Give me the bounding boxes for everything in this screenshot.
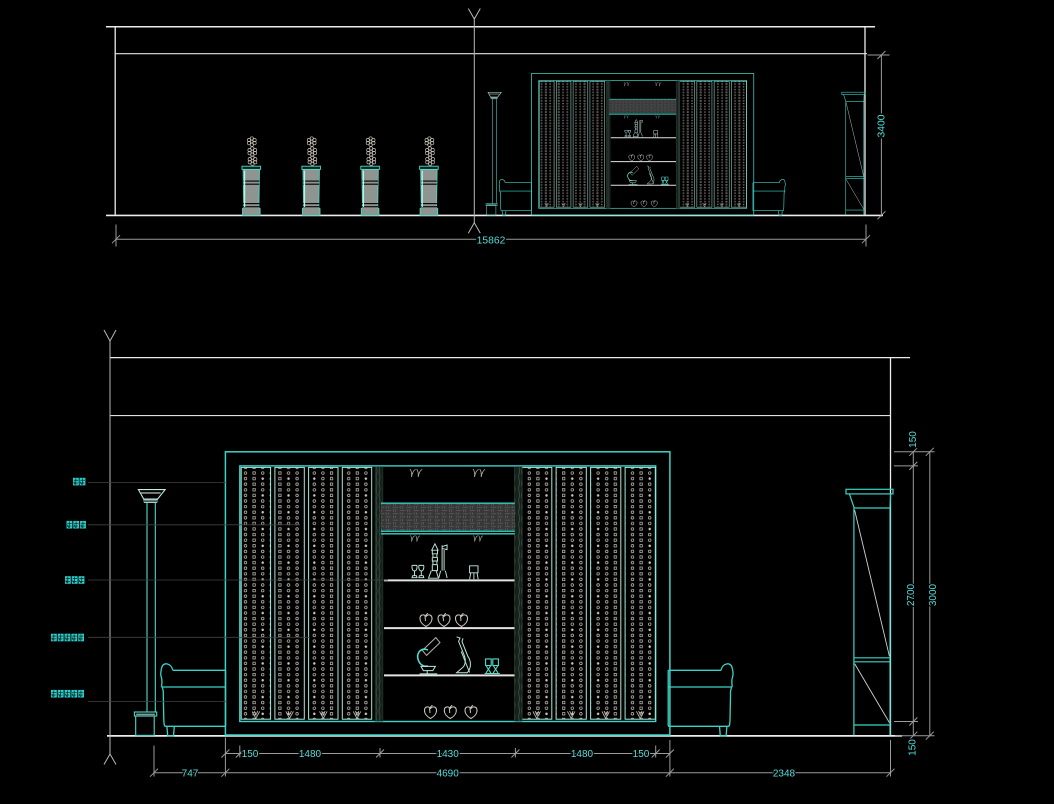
svg-text:15862: 15862 — [477, 235, 506, 246]
svg-text:150: 150 — [908, 739, 919, 756]
svg-text:150: 150 — [908, 431, 919, 448]
svg-text:747: 747 — [182, 768, 199, 779]
svg-text:4690: 4690 — [437, 768, 460, 779]
svg-text:2700: 2700 — [906, 583, 917, 606]
svg-text:2348: 2348 — [773, 768, 796, 779]
svg-text:1430: 1430 — [437, 749, 460, 760]
svg-text:3400: 3400 — [877, 114, 888, 137]
svg-text:1480: 1480 — [571, 749, 594, 760]
svg-text:150: 150 — [633, 749, 650, 760]
svg-text:3000: 3000 — [928, 583, 939, 606]
svg-text:1480: 1480 — [299, 749, 322, 760]
svg-text:150: 150 — [242, 749, 259, 760]
